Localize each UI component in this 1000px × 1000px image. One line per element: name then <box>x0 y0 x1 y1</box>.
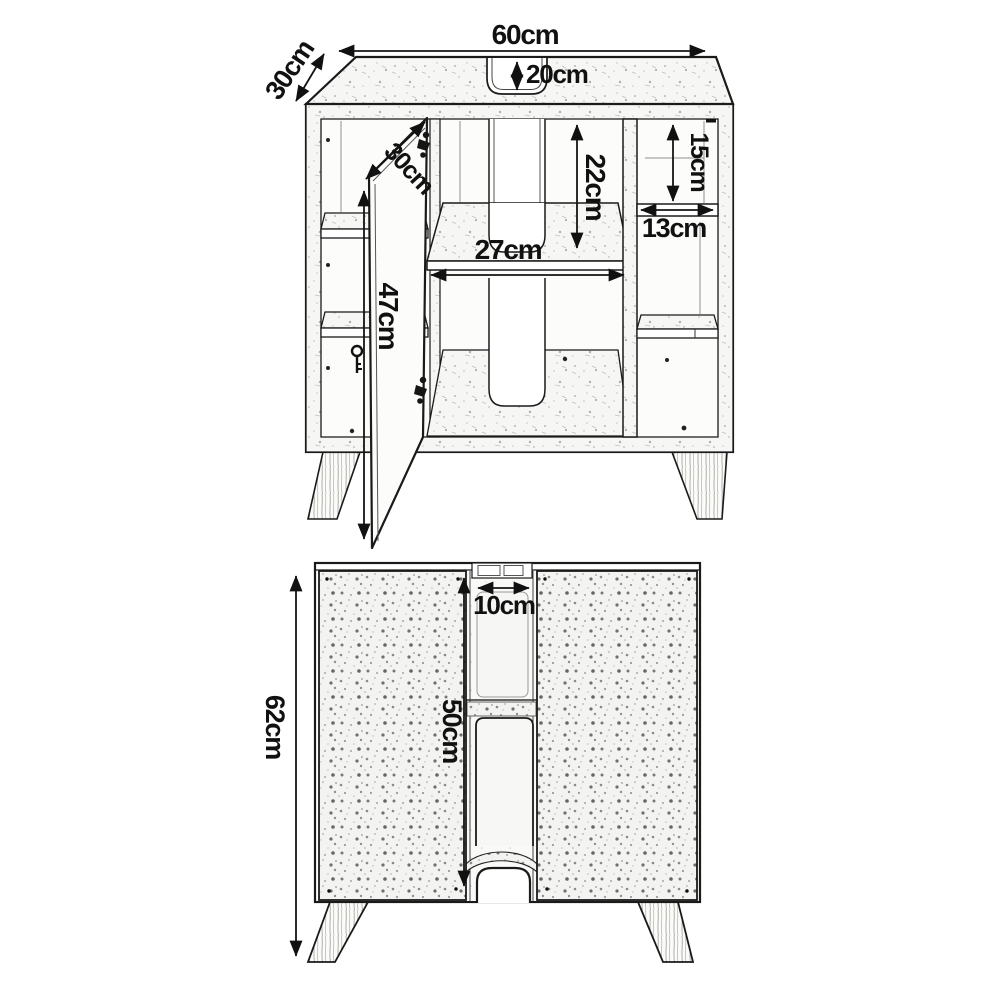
drawing-canvas: 60cm 30cm 20cm 30cm 47cm 22cm 27cm 15cm … <box>0 0 1000 1000</box>
right-shelf-lower <box>637 315 718 329</box>
dim-depth-label: 30cm <box>259 35 320 105</box>
pipe-slot-lower <box>489 278 545 406</box>
front-right-leg <box>638 902 693 962</box>
dim-sink-cutout-label: 20cm <box>526 59 588 89</box>
dim-door-height-label: 47cm <box>373 283 404 350</box>
right-shelf-lower-edge <box>637 329 718 338</box>
shelf-pin-dash <box>706 119 716 123</box>
dim-right-compartment-width-label: 13cm <box>642 213 706 243</box>
gap-lower-panel <box>476 718 533 846</box>
front-left-leg <box>308 902 368 962</box>
gap-top-box-detail-right <box>504 566 523 576</box>
dim-pipe-gap-label: 10cm <box>473 590 535 620</box>
dim-width-label: 60cm <box>492 19 559 50</box>
gap-shelf-edge-band <box>467 702 536 716</box>
cabinet-front-left-leg <box>308 452 360 519</box>
perspective-view: 60cm 30cm 20cm 30cm 47cm 22cm 27cm 15cm … <box>259 19 733 548</box>
dim-upper-opening-label: 22cm <box>580 154 611 221</box>
cabinet-front-right-leg <box>672 452 727 519</box>
dim-overall-height-label: 62cm <box>260 695 290 759</box>
center-divider <box>623 119 637 437</box>
gap-top-box-detail-left <box>478 566 500 576</box>
bottom-arch-cutout <box>477 868 530 903</box>
front-right-door <box>537 571 697 900</box>
technical-drawing: 60cm 30cm 20cm 30cm 47cm 22cm 27cm 15cm … <box>0 0 1000 1000</box>
dim-middle-shelf-label: 27cm <box>475 234 542 265</box>
floor-screw-dot <box>563 357 567 361</box>
dim-right-compartment-height-label: 15cm <box>685 132 713 191</box>
front-view: 62cm 10cm 50cm <box>260 563 700 962</box>
dim-front-door-height-label: 50cm <box>437 699 467 763</box>
